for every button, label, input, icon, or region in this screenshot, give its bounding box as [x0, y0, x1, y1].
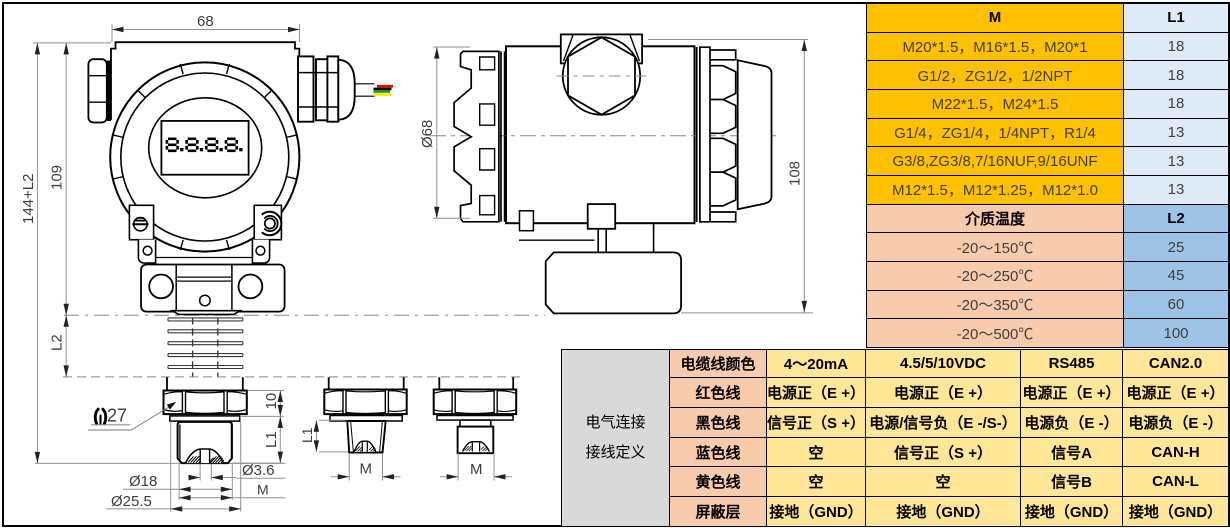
svg-text:109: 109 — [49, 165, 66, 190]
svg-text:108: 108 — [787, 161, 804, 186]
svg-text:27: 27 — [107, 406, 127, 426]
svg-text:68: 68 — [197, 13, 214, 30]
svg-text:L1: L1 — [299, 427, 315, 443]
svg-text:Ø25.5: Ø25.5 — [111, 493, 152, 510]
svg-text:L2: L2 — [49, 334, 66, 351]
svg-text:Ø18: Ø18 — [129, 473, 157, 490]
svg-text:M: M — [360, 461, 373, 478]
svg-text:Ø68: Ø68 — [419, 120, 436, 148]
svg-text:144+L2: 144+L2 — [20, 174, 37, 224]
svg-text:10: 10 — [263, 393, 280, 410]
svg-text:L1: L1 — [263, 431, 280, 448]
svg-text:Ø3.6: Ø3.6 — [242, 462, 275, 479]
svg-text:M: M — [470, 461, 483, 478]
svg-text:M: M — [257, 482, 269, 498]
